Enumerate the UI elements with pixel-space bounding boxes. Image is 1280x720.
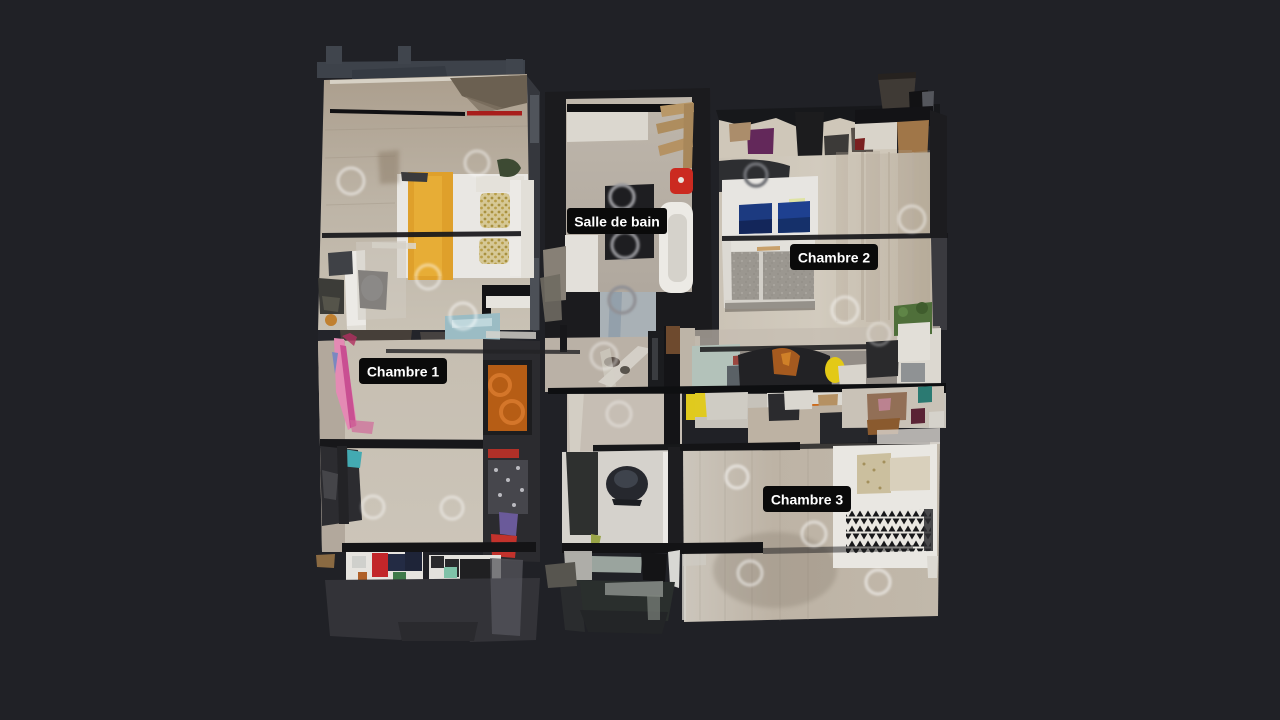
svg-text:Chambre 2: Chambre 2 <box>798 250 871 266</box>
svg-text:Chambre 3: Chambre 3 <box>771 492 844 508</box>
svg-text:Chambre 1: Chambre 1 <box>367 364 440 380</box>
svg-text:Salle de bain: Salle de bain <box>574 214 660 230</box>
